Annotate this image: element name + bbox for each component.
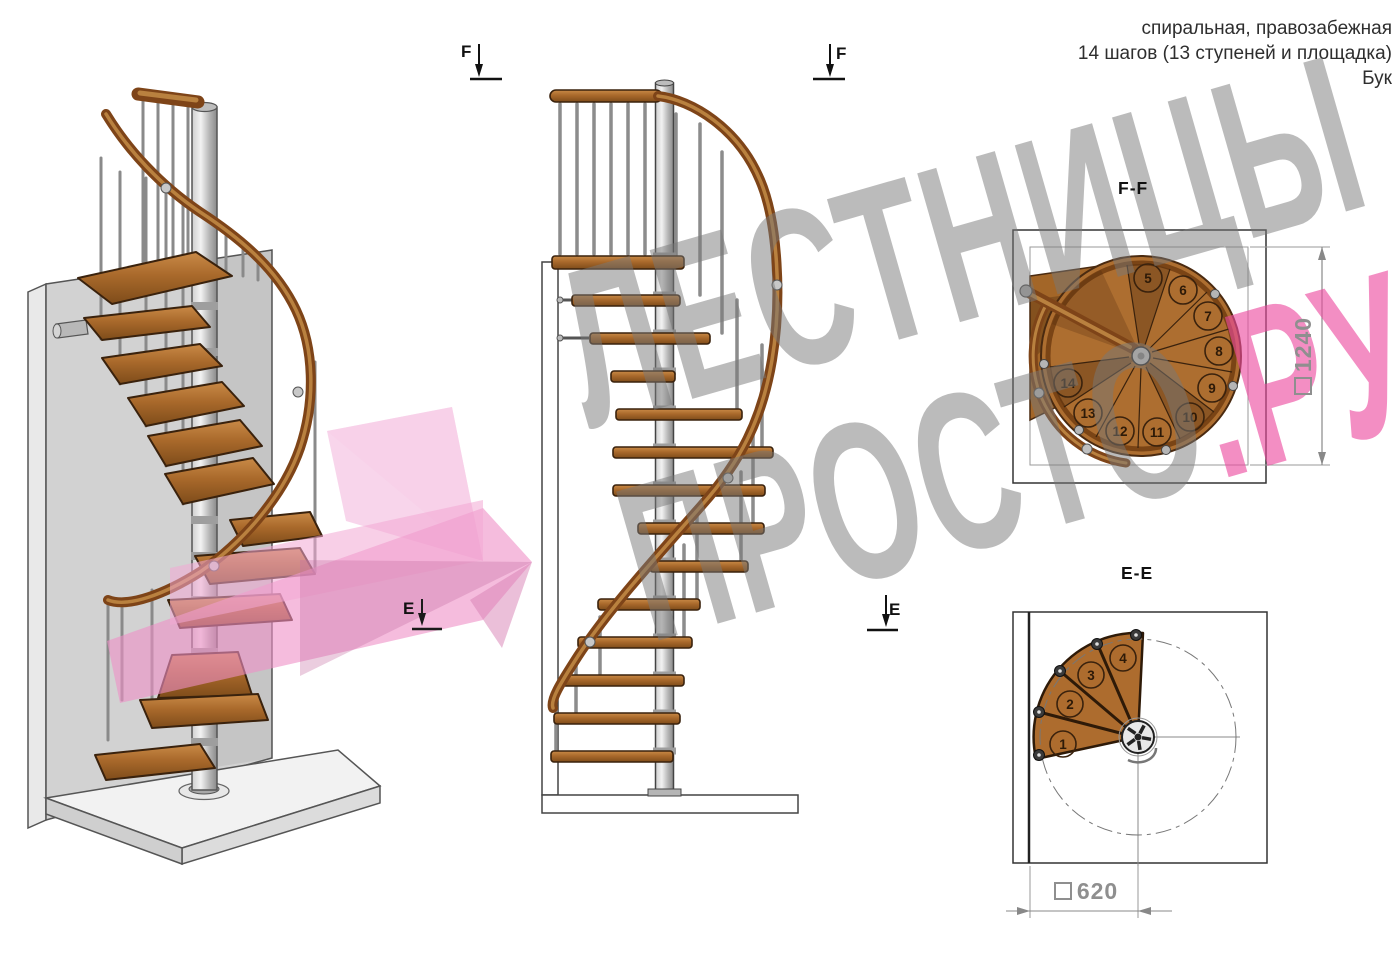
rail-sleeve (293, 387, 303, 397)
tread (613, 485, 765, 496)
ee-hub-spokes-part (1142, 738, 1151, 740)
ee-dimension-label: 620 (1036, 878, 1136, 904)
tread (616, 409, 742, 420)
step-number: 4 (1119, 651, 1127, 666)
tread (554, 713, 680, 724)
rail-sleeve (723, 473, 733, 483)
step-number: 14 (1060, 376, 1076, 391)
wall-edge (28, 284, 46, 828)
tread (572, 295, 680, 306)
step-number: 7 (1204, 309, 1212, 324)
tread (638, 523, 764, 534)
step-number: 1 (1059, 737, 1067, 752)
title-block: спиральная, правозабежная 14 шагов (13 с… (1078, 16, 1392, 91)
ee-bolts-part-part (1095, 642, 1099, 646)
tread (551, 751, 673, 762)
view-3d (28, 93, 380, 864)
staircase-drawing: 567891011121314 (0, 0, 1400, 961)
wall-bracket-cap (53, 324, 61, 338)
tread (562, 675, 684, 686)
guard-rail-bar (550, 90, 662, 102)
ee-bolts-part-part (1037, 710, 1041, 714)
ff-rail-sleeve (1034, 388, 1044, 398)
rail-sleeve (161, 183, 171, 193)
square-symbol-icon (1294, 377, 1312, 395)
section-ee: 1234 (1006, 612, 1267, 918)
f-marker-label-right: F (836, 44, 846, 64)
step-number: 13 (1080, 406, 1096, 421)
landing-elevation (552, 256, 684, 269)
ff-hub-center (1138, 353, 1145, 360)
bracket-pin (557, 297, 563, 303)
f-marker-label-left: F (461, 42, 471, 62)
step-number: 3 (1087, 668, 1095, 683)
ee-hub-spokes-part (1139, 741, 1140, 750)
ff-dimension-value: 1240 (1290, 317, 1317, 372)
header-type: спиральная, правозабежная (1078, 16, 1392, 41)
section-ff: 567891011121314 (1013, 230, 1330, 483)
square-symbol-icon (1054, 882, 1072, 900)
floor-section (542, 795, 798, 813)
ee-dim-arrow-right (1138, 907, 1151, 915)
tread (650, 561, 748, 572)
ee-bolts-part-part (1134, 633, 1138, 637)
rail-sleeve (772, 280, 782, 290)
step-number: 2 (1066, 697, 1074, 712)
ff-dimension-label: 1240 (1288, 296, 1318, 416)
ff-rail-fitting (1020, 285, 1032, 297)
rail-sleeve (585, 637, 595, 647)
tread (590, 333, 710, 344)
post-cap-elevation (656, 80, 674, 86)
step-number: 9 (1208, 381, 1216, 396)
ee-dim-arrow-left (1017, 907, 1030, 915)
ff-rim-bolts-part (1162, 446, 1171, 455)
tread (611, 371, 675, 382)
ff-rim-bolts-part (1040, 360, 1049, 369)
e-marker-label-left: E (403, 599, 414, 619)
bracket-pin (557, 335, 563, 341)
post-base-elevation (648, 789, 681, 796)
ff-dim-arrow-top (1318, 247, 1326, 260)
header-steps: 14 шагов (13 ступеней и площадка) (1078, 41, 1392, 66)
view-elevation (542, 80, 798, 813)
step-number: 10 (1182, 410, 1197, 425)
ee-bolts-part-part (1058, 669, 1062, 673)
ff-rim-bolts-part (1211, 290, 1220, 299)
ff-rim-bolts-part (1229, 382, 1238, 391)
step-number: 11 (1150, 425, 1165, 440)
page: { "header": { "line1": "спиральная, прав… (0, 0, 1400, 961)
ff-rail-sleeve (1082, 444, 1092, 454)
ee-dimension-value: 620 (1077, 878, 1118, 905)
ff-section-title: F-F (1118, 178, 1148, 199)
ff-rim-bolts-part (1075, 426, 1084, 435)
ee-bolts-part-part (1037, 753, 1041, 757)
ff-dim-arrow-bottom (1318, 452, 1326, 465)
center-post-elevation (656, 83, 674, 795)
header-material: Бук (1078, 66, 1392, 91)
ee-hub-center (1135, 734, 1142, 741)
e-marker-label-right: E (889, 600, 900, 620)
step-number: 12 (1112, 424, 1127, 439)
ee-section-title: E-E (1121, 563, 1153, 584)
step-number: 5 (1144, 271, 1152, 286)
tread (613, 447, 773, 458)
step-number: 6 (1179, 283, 1187, 298)
step-number: 8 (1215, 344, 1223, 359)
